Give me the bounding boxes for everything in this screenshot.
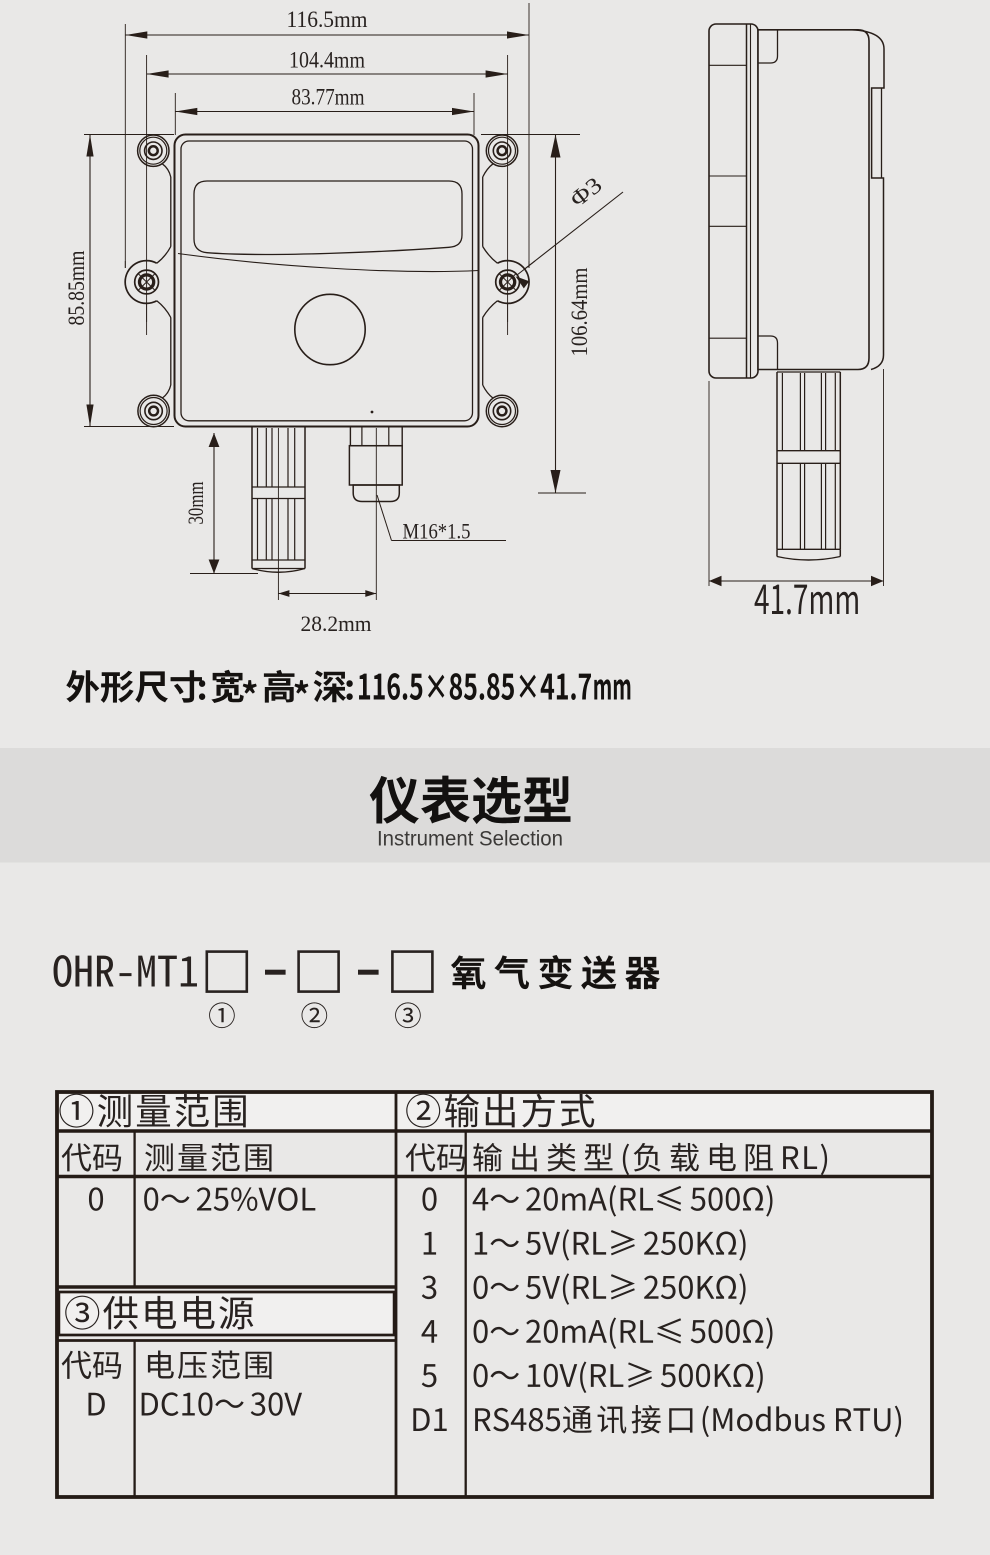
svg-text:85.85mm: 85.85mm: [64, 251, 90, 326]
svg-text:83.77mm: 83.77mm: [292, 85, 365, 110]
svg-text:30mm: 30mm: [183, 481, 208, 524]
svg-text:106.64mm: 106.64mm: [567, 268, 593, 357]
svg-text:Instrument Selection: Instrument Selection: [377, 827, 563, 851]
svg-text:104.4mm: 104.4mm: [289, 48, 365, 73]
svg-text:28.2mm: 28.2mm: [301, 611, 372, 636]
svg-text:116.5mm: 116.5mm: [287, 7, 368, 32]
svg-text:M16*1.5: M16*1.5: [403, 519, 471, 544]
